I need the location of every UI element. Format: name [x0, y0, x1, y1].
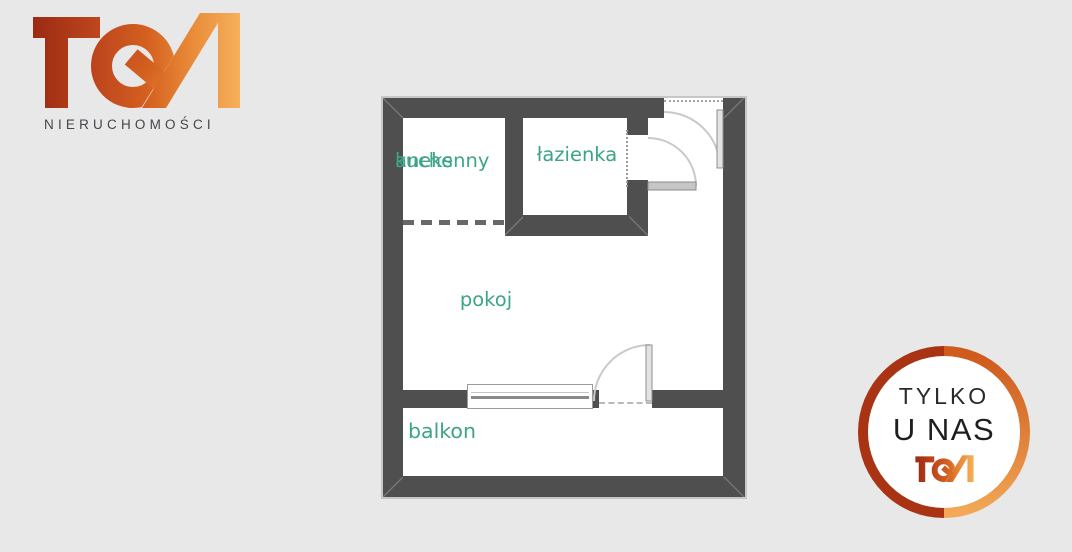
living-room-label: pokoj [446, 290, 526, 310]
balcony-door [594, 345, 652, 401]
entrance-door [664, 110, 723, 168]
kitchen-label-line2: kuchenny [395, 151, 489, 171]
floor-plan: aneks kuchenny łazienka pokoj balkon [383, 98, 745, 497]
badge-text-line2: U NAS [893, 412, 995, 448]
page-canvas: NIERUCHOMOŚCI [0, 0, 1072, 552]
tgn-logo-icon [33, 12, 240, 108]
brand-logo: NIERUCHOMOŚCI [33, 12, 243, 108]
balcony-label: balkon [408, 422, 476, 442]
exclusive-badge-inner: TYLKO U NAS [868, 356, 1020, 508]
badge-text-line1: TYLKO [899, 383, 989, 410]
bathroom-label: łazienka [523, 145, 631, 165]
brand-wordmark: NIERUCHOMOŚCI [44, 117, 215, 132]
badge-tgn-logo-icon [915, 455, 974, 482]
tgn-letters [33, 12, 240, 108]
exclusive-badge: TYLKO U NAS [858, 346, 1030, 518]
bathroom-door [648, 138, 696, 190]
